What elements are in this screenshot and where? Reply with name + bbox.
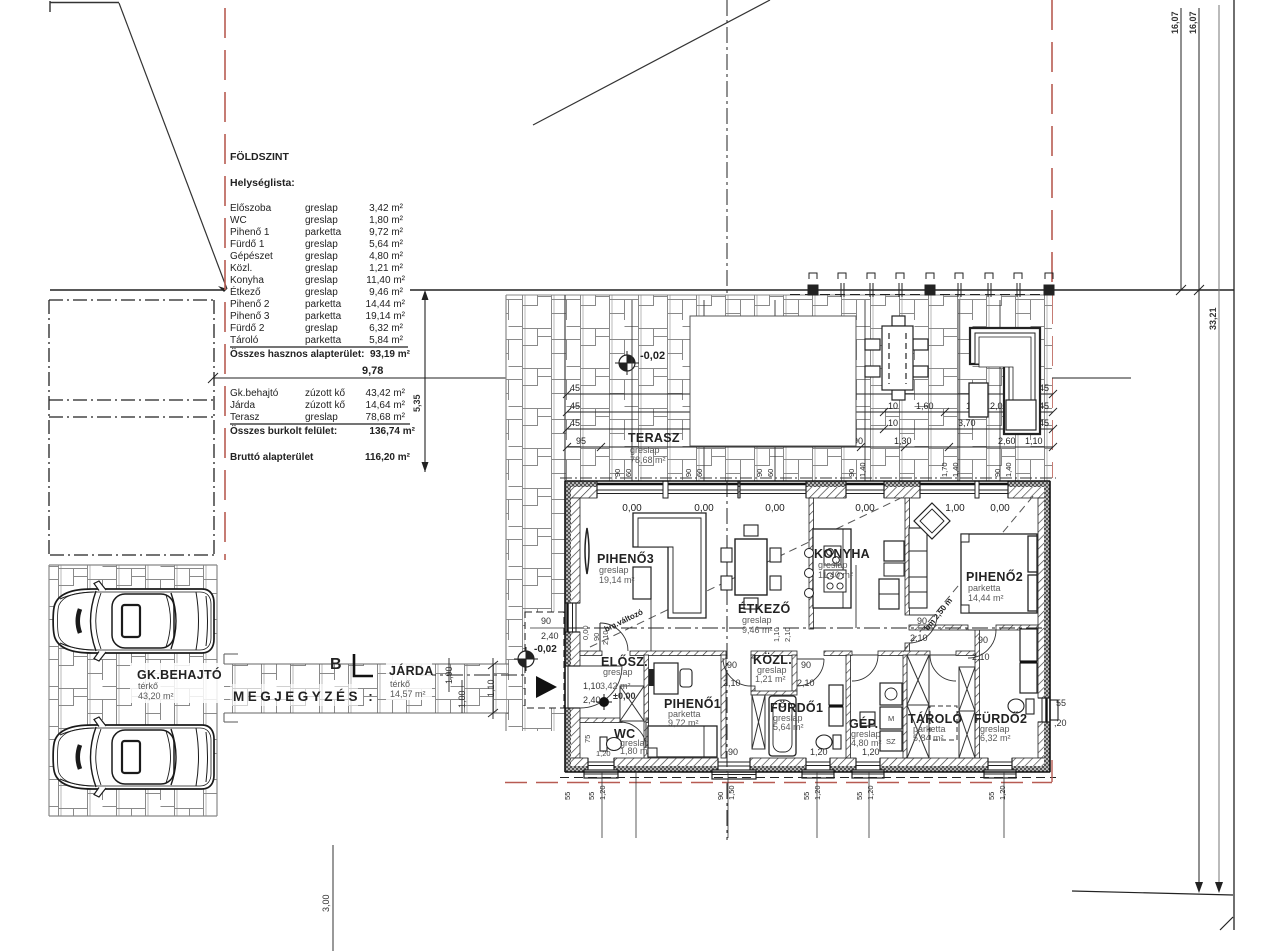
svg-text:5,35: 5,35 <box>412 394 422 412</box>
svg-text:MEGJEGYZÉS :: MEGJEGYZÉS : <box>233 689 376 704</box>
svg-text:Járda: Járda <box>230 400 255 411</box>
svg-text:Fürdő 1: Fürdő 1 <box>230 239 265 250</box>
svg-text:greslap: greslap <box>305 239 338 250</box>
svg-text:90: 90 <box>613 469 622 477</box>
svg-text:PIHENŐ2: PIHENŐ2 <box>966 569 1023 584</box>
svg-text:1,20: 1,20 <box>866 785 875 800</box>
svg-text:60: 60 <box>624 469 633 477</box>
svg-text:1,20: 1,20 <box>813 785 822 800</box>
svg-text:JÁRDA: JÁRDA <box>389 663 434 678</box>
svg-text:WC: WC <box>230 215 247 226</box>
svg-text:M: M <box>888 714 894 723</box>
svg-text:0,00: 0,00 <box>581 625 590 640</box>
svg-text:95: 95 <box>576 436 586 446</box>
svg-text:1,40: 1,40 <box>951 462 960 477</box>
svg-text:1,20: 1,20 <box>598 785 607 800</box>
svg-text:1,80 m²: 1,80 m² <box>369 215 404 226</box>
svg-text:1,40: 1,40 <box>858 462 867 477</box>
svg-text:Konyha: Konyha <box>230 275 264 286</box>
svg-text:55: 55 <box>855 792 864 800</box>
svg-text:5,84 m²: 5,84 m² <box>369 335 404 346</box>
svg-text:,20: ,20 <box>1054 718 1067 728</box>
svg-text:14,64 m²: 14,64 m² <box>366 400 406 411</box>
svg-text:6,32 m²: 6,32 m² <box>980 733 1011 743</box>
svg-text:Bruttó alapterület: Bruttó alapterület <box>230 452 314 463</box>
svg-text:Összes hasznos alapterület:: Összes hasznos alapterület: <box>230 347 365 360</box>
svg-text:-0,02: -0,02 <box>640 350 665 362</box>
svg-text:2,40: 2,40 <box>583 695 601 705</box>
svg-text:90: 90 <box>592 633 601 641</box>
svg-text:zúzott kő: zúzott kő <box>305 400 345 411</box>
svg-text:5,64 m²: 5,64 m² <box>773 722 804 732</box>
svg-text:90: 90 <box>755 469 764 477</box>
svg-text:parketta: parketta <box>305 335 342 346</box>
svg-text:9,46 m²: 9,46 m² <box>369 287 404 298</box>
svg-text:93,19 m²: 93,19 m² <box>370 349 411 360</box>
svg-text:2,10: 2,10 <box>797 678 815 688</box>
svg-text:11,40 m²: 11,40 m² <box>818 570 853 580</box>
svg-text:43,42 m²: 43,42 m² <box>366 388 406 399</box>
svg-text:90: 90 <box>993 469 1002 477</box>
svg-text:1,00: 1,00 <box>945 503 965 514</box>
svg-text:greslap: greslap <box>305 263 338 274</box>
svg-text:1,10: 1,10 <box>1025 436 1043 446</box>
svg-text:55: 55 <box>563 792 572 800</box>
svg-text:5,84 m²: 5,84 m² <box>913 733 944 743</box>
svg-text:2,10: 2,10 <box>601 630 610 645</box>
svg-text:greslap: greslap <box>599 565 629 575</box>
svg-text:1,20: 1,20 <box>596 749 611 758</box>
svg-text:greslap: greslap <box>305 275 338 286</box>
svg-text:16,07: 16,07 <box>1188 11 1198 34</box>
svg-text:14,57 m²: 14,57 m² <box>390 689 426 699</box>
svg-text:1,20: 1,20 <box>998 785 1007 800</box>
svg-text:SZ: SZ <box>886 737 896 746</box>
svg-text:1,20: 1,20 <box>810 747 828 757</box>
svg-text:11,40 m²: 11,40 m² <box>366 275 405 286</box>
svg-text:Előszoba: Előszoba <box>230 203 272 214</box>
svg-text:60: 60 <box>695 469 704 477</box>
svg-text:zúzott kő: zúzott kő <box>305 388 345 399</box>
svg-text:90: 90 <box>847 469 856 477</box>
svg-text:parketta: parketta <box>968 583 1001 593</box>
svg-text:16,07: 16,07 <box>1170 11 1180 34</box>
svg-text:45: 45 <box>570 418 580 428</box>
svg-text:1,21 m²: 1,21 m² <box>755 674 786 684</box>
svg-text:9,78: 9,78 <box>362 365 383 377</box>
svg-text:greslap: greslap <box>305 412 338 423</box>
svg-text:90: 90 <box>728 747 738 757</box>
svg-text:90: 90 <box>917 616 927 626</box>
svg-text:KONYHA: KONYHA <box>814 547 870 561</box>
svg-text:1,70: 1,70 <box>940 462 949 477</box>
svg-text:GK.BEHAJTÓ: GK.BEHAJTÓ <box>137 667 222 682</box>
svg-text:greslap: greslap <box>305 215 338 226</box>
svg-text:Összes burkolt felület:: Összes burkolt felület: <box>230 424 337 437</box>
svg-text:19,14 m²: 19,14 m² <box>599 575 635 585</box>
svg-text:55: 55 <box>587 792 596 800</box>
svg-text:1,10: 1,10 <box>486 679 496 697</box>
svg-text:55: 55 <box>802 792 811 800</box>
svg-text:0,00: 0,00 <box>855 503 875 514</box>
svg-text:parketta: parketta <box>305 311 342 322</box>
svg-text:116,20 m²: 116,20 m² <box>365 452 411 463</box>
svg-text:0,00: 0,00 <box>765 503 785 514</box>
svg-text:43,20 m²: 43,20 m² <box>138 691 174 701</box>
svg-text:Pihenő 1: Pihenő 1 <box>230 227 270 238</box>
svg-text:TERASZ: TERASZ <box>628 431 680 445</box>
svg-text:60: 60 <box>766 469 775 477</box>
svg-text:greslap: greslap <box>305 323 338 334</box>
svg-text:78,68 m²: 78,68 m² <box>630 455 666 465</box>
svg-text:térkő: térkő <box>138 681 158 691</box>
svg-text:55: 55 <box>987 792 996 800</box>
svg-text:2,40: 2,40 <box>541 631 559 641</box>
svg-text:1,20: 1,20 <box>862 747 880 757</box>
svg-text:33,21: 33,21 <box>1208 307 1218 330</box>
svg-text:greslap: greslap <box>818 560 848 570</box>
svg-text:3,42 m²: 3,42 m² <box>600 681 631 691</box>
svg-text:Gépészet: Gépészet <box>230 251 273 262</box>
svg-text:9,46 m²: 9,46 m² <box>742 625 773 635</box>
svg-text:parketta: parketta <box>305 227 342 238</box>
svg-text:10: 10 <box>888 418 898 428</box>
svg-text:greslap: greslap <box>742 615 772 625</box>
svg-text:90: 90 <box>727 660 737 670</box>
svg-text:90: 90 <box>801 660 811 670</box>
svg-text:1,00: 1,00 <box>457 690 467 708</box>
svg-text:3,00: 3,00 <box>321 894 331 912</box>
svg-text:Tároló: Tároló <box>230 335 259 346</box>
svg-text:térkő: térkő <box>390 679 410 689</box>
svg-text:B: B <box>330 656 342 673</box>
svg-text:ÉTKEZŐ: ÉTKEZŐ <box>738 601 791 616</box>
svg-text:9,72 m²: 9,72 m² <box>668 718 699 728</box>
svg-text:parketta: parketta <box>305 299 342 310</box>
svg-text:Pihenő 2: Pihenő 2 <box>230 299 270 310</box>
svg-text:greslap: greslap <box>305 287 338 298</box>
svg-text:9,72 m²: 9,72 m² <box>369 227 404 238</box>
svg-text:1,10: 1,10 <box>583 681 601 691</box>
svg-text:2,10: 2,10 <box>972 652 990 662</box>
svg-text:1,90: 1,90 <box>444 666 454 684</box>
svg-text:3,42 m²: 3,42 m² <box>369 203 404 214</box>
svg-text:6,32 m²: 6,32 m² <box>369 323 404 334</box>
svg-text:2,60: 2,60 <box>998 436 1016 446</box>
svg-text:1,21 m²: 1,21 m² <box>369 263 404 274</box>
svg-text:Gk.behajtó: Gk.behajtó <box>230 388 279 399</box>
svg-text:78,68 m²: 78,68 m² <box>366 412 406 423</box>
svg-text:1,10: 1,10 <box>772 627 781 642</box>
svg-text:45: 45 <box>570 401 580 411</box>
svg-text:greslap: greslap <box>630 445 660 455</box>
svg-text:±0,00: ±0,00 <box>613 691 635 701</box>
svg-text:Terasz: Terasz <box>230 412 259 423</box>
svg-text:Közl.: Közl. <box>230 263 252 274</box>
svg-text:greslap: greslap <box>305 203 338 214</box>
svg-text:1,80 m²: 1,80 m² <box>620 746 651 756</box>
svg-text:3,70: 3,70 <box>958 418 976 428</box>
svg-text:55: 55 <box>1056 698 1066 708</box>
svg-text:14,44 m²: 14,44 m² <box>366 299 406 310</box>
svg-text:greslap: greslap <box>305 251 338 262</box>
svg-text:Helységlista:: Helységlista: <box>230 177 295 189</box>
svg-text:5,64 m²: 5,64 m² <box>369 239 404 250</box>
svg-text:75: 75 <box>583 735 592 743</box>
svg-text:90: 90 <box>978 635 988 645</box>
svg-text:90: 90 <box>684 469 693 477</box>
svg-text:FÖLDSZINT: FÖLDSZINT <box>230 150 289 163</box>
svg-text:10: 10 <box>888 401 898 411</box>
svg-text:19,14 m²: 19,14 m² <box>366 311 406 322</box>
svg-text:Fürdő 2: Fürdő 2 <box>230 323 265 334</box>
svg-text:2,10: 2,10 <box>783 627 792 642</box>
svg-text:90: 90 <box>716 792 725 800</box>
svg-text:greslap: greslap <box>603 667 633 677</box>
svg-text:136,74 m²: 136,74 m² <box>369 426 415 437</box>
svg-text:1,30: 1,30 <box>894 436 912 446</box>
svg-text:Pihenő 3: Pihenő 3 <box>230 311 270 322</box>
svg-text:14,44 m²: 14,44 m² <box>968 593 1004 603</box>
svg-text:1,40: 1,40 <box>1004 462 1013 477</box>
svg-text:4,80 m²: 4,80 m² <box>369 251 404 262</box>
svg-text:PIHENŐ3: PIHENŐ3 <box>597 551 654 566</box>
svg-text:0,00: 0,00 <box>990 503 1010 514</box>
svg-text:2,10: 2,10 <box>723 678 741 688</box>
svg-text:Étkező: Étkező <box>230 285 261 298</box>
svg-text:-0,02: -0,02 <box>534 644 557 655</box>
svg-text:45: 45 <box>570 383 580 393</box>
svg-text:90: 90 <box>541 616 551 626</box>
svg-text:1,60: 1,60 <box>916 401 934 411</box>
